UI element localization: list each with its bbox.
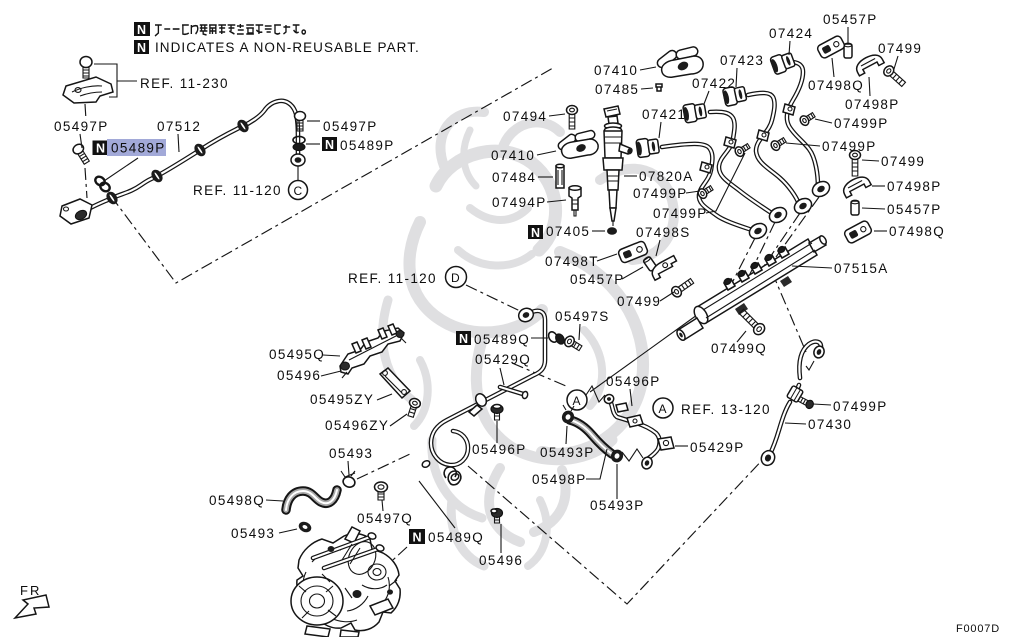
svg-text:07410: 07410	[594, 63, 638, 78]
svg-text:N: N	[531, 226, 540, 240]
svg-text:F0007D: F0007D	[956, 623, 1000, 635]
svg-text:05457P: 05457P	[823, 12, 878, 27]
svg-text:07498Q: 07498Q	[889, 224, 945, 239]
svg-text:05457P: 05457P	[887, 202, 942, 217]
svg-text:07405: 07405	[546, 224, 590, 239]
svg-text:N: N	[96, 142, 105, 156]
svg-text:07499: 07499	[617, 294, 661, 309]
svg-text:07410: 07410	[491, 148, 535, 163]
svg-text:REF. 13-120: REF. 13-120	[681, 402, 771, 417]
svg-text:07499Q: 07499Q	[711, 341, 767, 356]
svg-text:N: N	[459, 332, 468, 346]
svg-text:05493P: 05493P	[540, 445, 595, 460]
svg-text:07820A: 07820A	[639, 169, 694, 184]
svg-text:07499P: 07499P	[834, 116, 889, 131]
svg-text:07485: 07485	[595, 82, 639, 97]
svg-text:A: A	[659, 402, 667, 416]
svg-text:05489Q: 05489Q	[428, 530, 484, 545]
svg-text:07499P: 07499P	[833, 399, 888, 414]
svg-text:07424: 07424	[769, 26, 813, 41]
svg-text:07498P: 07498P	[887, 179, 942, 194]
svg-text:INDICATES A NON-REUSABLE PART.: INDICATES A NON-REUSABLE PART.	[155, 40, 420, 55]
svg-text:REF. 11-120: REF. 11-120	[348, 271, 437, 286]
svg-text:07498Q: 07498Q	[808, 78, 864, 93]
svg-text:05493P: 05493P	[590, 498, 645, 513]
svg-text:07499P: 07499P	[653, 206, 708, 221]
svg-text:07494P: 07494P	[492, 195, 547, 210]
svg-text:07499: 07499	[878, 41, 922, 56]
svg-text:N: N	[137, 23, 146, 37]
svg-text:07422: 07422	[692, 76, 736, 91]
svg-text:05429Q: 05429Q	[475, 352, 531, 367]
svg-text:05489Q: 05489Q	[474, 332, 530, 347]
svg-text:05495ZY: 05495ZY	[310, 392, 374, 407]
svg-text:07498P: 07498P	[845, 97, 900, 112]
svg-text:05497P: 05497P	[54, 119, 109, 134]
svg-text:05497S: 05497S	[555, 309, 610, 324]
svg-text:05496P: 05496P	[472, 442, 527, 457]
svg-text:05493: 05493	[231, 526, 275, 541]
svg-text:05489P: 05489P	[340, 138, 395, 153]
svg-text:N: N	[137, 41, 146, 55]
svg-text:05493: 05493	[329, 446, 373, 461]
svg-text:05498Q: 05498Q	[209, 493, 265, 508]
svg-text:05496P: 05496P	[606, 374, 661, 389]
svg-text:05498P: 05498P	[532, 472, 587, 487]
svg-text:C: C	[294, 184, 303, 198]
svg-text:07499P: 07499P	[822, 139, 877, 154]
svg-text:REF. 11-120: REF. 11-120	[193, 183, 282, 198]
svg-text:05496: 05496	[277, 368, 321, 383]
svg-text:05497Q: 05497Q	[357, 511, 413, 526]
svg-text:07484: 07484	[492, 170, 536, 185]
svg-text:05495Q: 05495Q	[269, 347, 325, 362]
svg-text:REF. 11-230: REF. 11-230	[140, 76, 229, 91]
svg-text:07494: 07494	[503, 109, 547, 124]
svg-text:05496ZY: 05496ZY	[325, 418, 389, 433]
svg-text:05497P: 05497P	[323, 119, 378, 134]
svg-text:07498S: 07498S	[636, 225, 691, 240]
svg-text:N: N	[413, 531, 422, 545]
svg-text:05496: 05496	[479, 553, 523, 568]
svg-text:07421: 07421	[642, 107, 686, 122]
svg-text:D: D	[451, 271, 460, 285]
svg-text:05489P: 05489P	[111, 141, 166, 156]
svg-text:07499P: 07499P	[633, 186, 688, 201]
svg-text:N: N	[325, 138, 334, 152]
svg-text:07499: 07499	[881, 154, 925, 169]
svg-text:07515A: 07515A	[834, 261, 889, 276]
svg-text:05457P: 05457P	[570, 272, 625, 287]
svg-text:05429P: 05429P	[690, 440, 745, 455]
svg-text:07512: 07512	[157, 119, 201, 134]
svg-text:07498T: 07498T	[545, 254, 599, 269]
svg-text:07430: 07430	[808, 417, 852, 432]
svg-text:07423: 07423	[720, 53, 764, 68]
svg-text:FR: FR	[20, 583, 41, 598]
